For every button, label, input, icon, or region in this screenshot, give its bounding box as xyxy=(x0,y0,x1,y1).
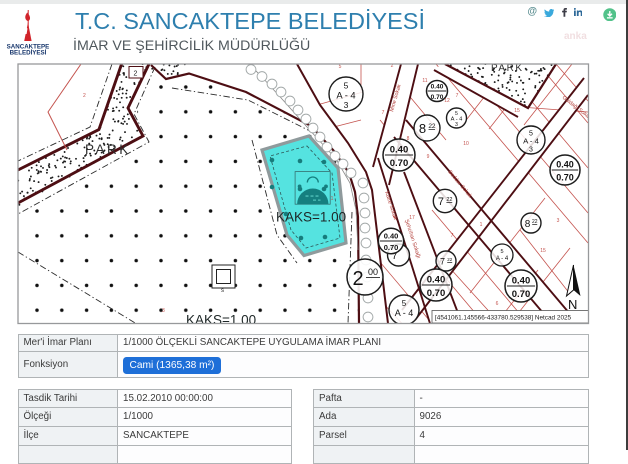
svg-text:0.70: 0.70 xyxy=(512,289,531,300)
svg-text:0.40: 0.40 xyxy=(427,275,446,286)
svg-text:2: 2 xyxy=(83,93,86,99)
svg-text:6: 6 xyxy=(496,301,499,307)
svg-text:0.40: 0.40 xyxy=(431,84,444,91)
svg-text:3: 3 xyxy=(162,308,165,314)
svg-text:5: 5 xyxy=(402,299,407,308)
svg-text:7: 7 xyxy=(451,233,454,239)
svg-text:00: 00 xyxy=(368,267,378,277)
svg-text:0.40: 0.40 xyxy=(512,276,531,287)
svg-text:0.40: 0.40 xyxy=(556,160,574,170)
svg-text:0.70: 0.70 xyxy=(431,94,444,101)
svg-text:22: 22 xyxy=(532,219,538,225)
svg-text:15: 15 xyxy=(514,108,520,114)
svg-text:3: 3 xyxy=(455,122,458,128)
svg-text:8: 8 xyxy=(407,136,410,142)
svg-text:1: 1 xyxy=(480,222,483,228)
svg-text:3: 3 xyxy=(344,100,349,110)
svg-text:22: 22 xyxy=(428,123,436,130)
svg-text:22: 22 xyxy=(447,257,453,262)
svg-text:A - 4: A - 4 xyxy=(395,308,414,318)
svg-text:5: 5 xyxy=(339,64,342,70)
svg-text:PARK: PARK xyxy=(85,142,131,157)
svg-text:7: 7 xyxy=(440,256,445,266)
svg-text:0.40: 0.40 xyxy=(384,232,399,241)
svg-text:9: 9 xyxy=(427,154,430,160)
svg-text:7: 7 xyxy=(456,93,459,99)
svg-text:0.70: 0.70 xyxy=(390,158,409,169)
svg-text:[4541061.145566-433780.529538]: [4541061.145566-433780.529538] Netcad 20… xyxy=(435,315,572,322)
svg-text:3: 3 xyxy=(557,218,560,224)
svg-text:7: 7 xyxy=(382,110,385,116)
svg-text:7: 7 xyxy=(438,196,444,208)
svg-text:3: 3 xyxy=(529,146,533,153)
svg-text:0.70: 0.70 xyxy=(384,243,399,252)
svg-text:15: 15 xyxy=(540,248,546,254)
svg-text:12: 12 xyxy=(444,98,450,104)
svg-text:2: 2 xyxy=(134,71,138,78)
svg-text:0.70: 0.70 xyxy=(427,288,446,299)
svg-text:KAKS=1.00: KAKS=1.00 xyxy=(276,210,346,225)
svg-text:s: s xyxy=(221,288,224,294)
svg-text:22: 22 xyxy=(446,197,452,203)
svg-text:KAKS=1.00: KAKS=1.00 xyxy=(186,313,256,328)
svg-text:0.40: 0.40 xyxy=(390,145,409,156)
svg-text:8: 8 xyxy=(419,121,426,136)
svg-text:8: 8 xyxy=(525,219,531,230)
svg-text:0.70: 0.70 xyxy=(556,173,574,183)
svg-text:A - 4: A - 4 xyxy=(523,137,540,146)
svg-text:2: 2 xyxy=(352,268,363,290)
svg-text:5: 5 xyxy=(500,249,503,255)
svg-text:N: N xyxy=(568,297,577,312)
svg-text:A - 4: A - 4 xyxy=(496,256,509,262)
svg-text:11: 11 xyxy=(422,78,427,84)
svg-text:10: 10 xyxy=(463,141,469,147)
svg-text:1: 1 xyxy=(331,196,334,202)
svg-text:A - 4: A - 4 xyxy=(336,89,355,100)
